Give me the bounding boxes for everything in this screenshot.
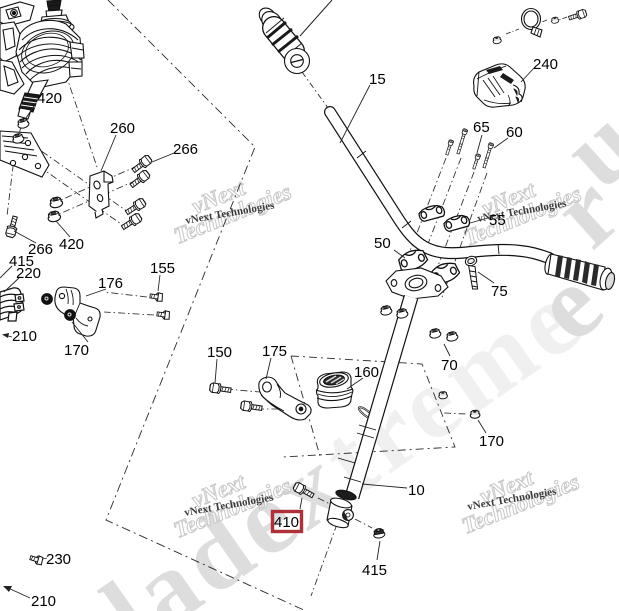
svg-text:70: 70 bbox=[441, 357, 458, 374]
svg-text:170: 170 bbox=[479, 433, 504, 450]
svg-text:50: 50 bbox=[374, 235, 391, 252]
svg-text:15: 15 bbox=[369, 71, 386, 88]
svg-text:266: 266 bbox=[173, 141, 198, 158]
svg-text:410: 410 bbox=[274, 514, 299, 531]
svg-text:415: 415 bbox=[362, 562, 387, 579]
svg-text:65: 65 bbox=[473, 119, 490, 136]
svg-text:220: 220 bbox=[16, 265, 41, 282]
svg-text:155: 155 bbox=[150, 260, 175, 277]
svg-text:240: 240 bbox=[533, 56, 558, 73]
svg-text:210: 210 bbox=[31, 593, 56, 610]
svg-text:176: 176 bbox=[98, 275, 123, 292]
svg-text:160: 160 bbox=[354, 364, 379, 381]
svg-text:170: 170 bbox=[64, 342, 89, 359]
svg-text:260: 260 bbox=[110, 120, 135, 137]
svg-text:420: 420 bbox=[59, 236, 84, 253]
svg-text:420: 420 bbox=[37, 90, 62, 107]
svg-text:230: 230 bbox=[46, 551, 71, 568]
svg-text:210: 210 bbox=[12, 328, 37, 345]
svg-text:55: 55 bbox=[489, 212, 506, 229]
svg-text:150: 150 bbox=[207, 344, 232, 361]
svg-text:10: 10 bbox=[408, 482, 425, 499]
svg-text:75: 75 bbox=[491, 283, 508, 300]
svg-text:175: 175 bbox=[262, 343, 287, 360]
svg-text:60: 60 bbox=[506, 124, 523, 141]
